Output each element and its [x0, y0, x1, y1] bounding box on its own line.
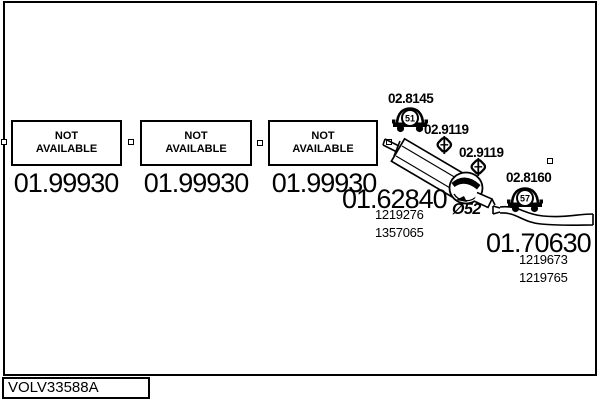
- price-section-1[interactable]: 01.99930: [8, 168, 124, 199]
- diagram-code-box: VOLV33588A: [2, 377, 150, 399]
- muffler-ref-2: 1357065: [375, 225, 424, 240]
- not-available-box-2[interactable]: NOT AVAILABLE: [140, 120, 252, 166]
- diagram-code: VOLV33588A: [8, 379, 99, 396]
- not-available-box-2-line2: AVAILABLE: [165, 143, 226, 156]
- tailpipe-ref-1: 1219673: [519, 252, 568, 267]
- exhaust-parts-diagram: NOT AVAILABLE NOT AVAILABLE NOT AVAILABL…: [0, 0, 600, 400]
- not-available-box-3[interactable]: NOT AVAILABLE: [268, 120, 378, 166]
- tailpipe-ref-2: 1219765: [519, 270, 568, 285]
- price-section-2[interactable]: 01.99930: [138, 168, 254, 199]
- not-available-box-1-line2: AVAILABLE: [36, 143, 97, 156]
- joint-square-1: [1, 139, 7, 145]
- hanger-front-badge: 51: [405, 113, 415, 123]
- joint-square-2: [128, 139, 134, 145]
- muffler-ref-1: 1219276: [375, 207, 424, 222]
- tailpipe-drawing: [487, 198, 599, 230]
- muffler-diameter-label: Ø52: [452, 201, 481, 219]
- rubber-hanger-front-icon: 51: [392, 104, 429, 134]
- not-available-box-3-line2: AVAILABLE: [292, 143, 353, 156]
- not-available-box-2-line1: NOT: [184, 130, 207, 143]
- joint-square-5: [547, 158, 553, 164]
- joint-square-3: [257, 140, 263, 146]
- not-available-box-1-line1: NOT: [55, 130, 78, 143]
- label-hanger-rear[interactable]: 02.8160: [506, 170, 551, 185]
- not-available-box-3-line1: NOT: [311, 130, 334, 143]
- not-available-box-1[interactable]: NOT AVAILABLE: [11, 120, 122, 166]
